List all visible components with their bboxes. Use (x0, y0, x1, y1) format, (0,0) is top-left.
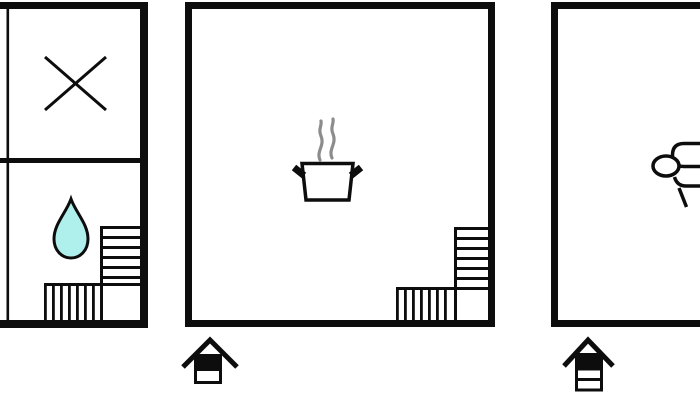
stair-tread (444, 290, 447, 320)
crossed-lines-icon (45, 57, 106, 110)
stair-tread (455, 277, 488, 280)
stair-tread (84, 286, 87, 320)
house-level-indicator-icon-3-levels (564, 340, 613, 390)
wall-room-divider (0, 158, 141, 163)
house-level-indicator-icon-2-levels (183, 340, 237, 383)
wall-inner-thin (7, 2, 10, 326)
level-bottom (577, 380, 602, 391)
wall-top (0, 2, 148, 9)
stair-tread (428, 290, 431, 320)
stair-tread (52, 286, 55, 320)
stair-landing-edge (44, 283, 140, 286)
stair-tread (68, 286, 71, 320)
stair-tread (454, 227, 488, 230)
stair-tread (44, 286, 47, 320)
stair-tread (101, 256, 140, 259)
level-top-filled (575, 353, 603, 369)
section-middle-floor (183, 6, 492, 383)
stair-stringer (454, 227, 457, 320)
stair-tread (76, 286, 79, 320)
stair-tread (455, 257, 488, 260)
stair-tread (396, 290, 399, 320)
cooking-pot-icon (294, 164, 361, 201)
stair-tread (412, 290, 415, 320)
stair-tread (455, 247, 488, 250)
floor-plan-canvas (0, 0, 700, 400)
pot-body (302, 164, 353, 201)
wall-bottom (0, 320, 148, 328)
stair-tread (455, 237, 488, 240)
stair-tread (101, 276, 140, 279)
section-right-floor (555, 6, 700, 391)
bed-pillow (653, 156, 679, 176)
stair-tread (92, 286, 95, 320)
stair-tread (101, 266, 140, 269)
stair-tread (436, 290, 439, 320)
stair-tread (404, 290, 407, 320)
level-top-filled (194, 354, 222, 370)
stair-landing-edge (396, 287, 488, 290)
stair-tread (455, 267, 488, 270)
floor-plan-svg (0, 0, 700, 400)
stair-tread (101, 246, 140, 249)
stair-tread (60, 286, 63, 320)
water-drop-icon (54, 199, 88, 258)
stair-tread (420, 290, 423, 320)
level-bottom (196, 370, 221, 383)
stair-stringer (100, 226, 103, 320)
stair-tread (100, 226, 140, 229)
level-middle (577, 369, 602, 380)
section-left-floor (0, 2, 148, 328)
stair-tread (101, 236, 140, 239)
wall-right (140, 2, 148, 328)
